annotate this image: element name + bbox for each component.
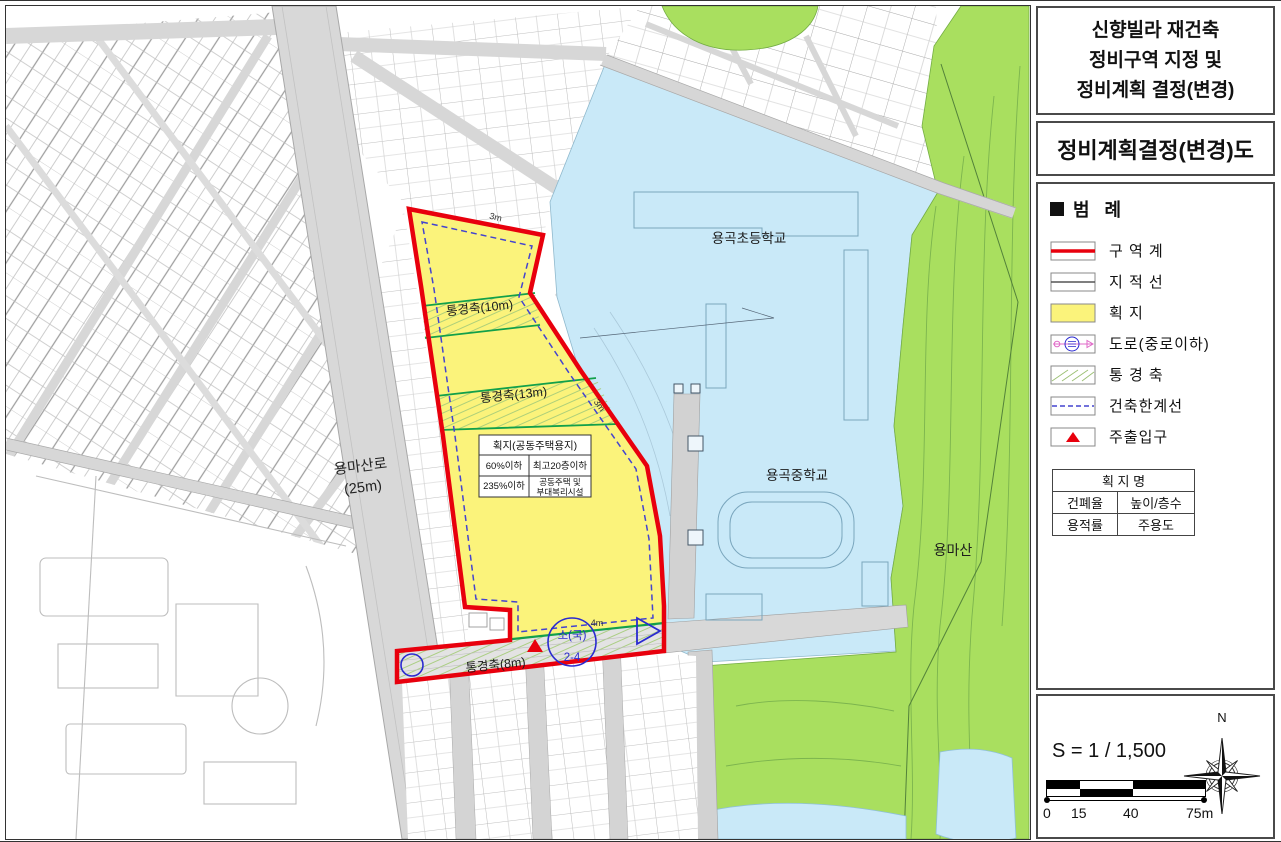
mountain-label: 용마산 bbox=[934, 542, 973, 558]
view-corridor-swatch-icon bbox=[1050, 365, 1096, 385]
compass-rose-icon: N bbox=[1179, 702, 1265, 830]
road-number-top: 소(국) bbox=[558, 629, 587, 642]
svg-text:235%이하: 235%이하 bbox=[483, 480, 525, 492]
drawing-title-box: 신향빌라 재건축 정비구역 지정 및 정비계획 결정(변경) bbox=[1036, 6, 1275, 115]
main-entrance-swatch-icon bbox=[1050, 427, 1096, 447]
legend-box: 범 례 구 역 계 지 적 선 획 지 도로(중로이하) bbox=[1036, 182, 1275, 690]
legend-item-zone-boundary: 구 역 계 bbox=[1050, 235, 1273, 266]
title-line-1: 신향빌라 재건축 bbox=[1038, 16, 1273, 46]
legend-title: 범 례 bbox=[1073, 196, 1126, 222]
parcel-table-header: 획지(공동주택용지) bbox=[493, 440, 577, 452]
svg-text:부대복리시설: 부대복리시설 bbox=[537, 487, 584, 497]
legend-item-building-limit: 건축한계선 bbox=[1050, 390, 1273, 421]
legend-square-icon bbox=[1050, 202, 1064, 216]
scale-tick-40: 40 bbox=[1123, 805, 1139, 821]
legend-item-road: 도로(중로이하) bbox=[1050, 328, 1273, 359]
parcel-swatch-icon bbox=[1050, 303, 1096, 323]
title-line-3: 정비계획 결정(변경) bbox=[1038, 76, 1273, 106]
drawing-subtitle-box: 정비계획결정(변경)도 bbox=[1036, 121, 1275, 176]
subtitle: 정비계획결정(변경)도 bbox=[1057, 133, 1254, 165]
elementary-school-label: 용곡초등학교 bbox=[712, 231, 787, 246]
zone-boundary-swatch-icon bbox=[1050, 241, 1096, 261]
zone-spec-table: 획 지 명 건폐율 높이/층수 용적률 주용도 bbox=[1052, 469, 1195, 536]
road-swatch-icon bbox=[1050, 334, 1096, 354]
legend-item-parcel: 획 지 bbox=[1050, 297, 1273, 328]
scale-ratio: S = 1 / 1,500 bbox=[1052, 740, 1166, 763]
svg-text:최고20층이하: 최고20층이하 bbox=[533, 460, 588, 472]
legend-item-main-entrance: 주출입구 bbox=[1050, 421, 1273, 452]
legend-header: 범 례 bbox=[1050, 196, 1273, 222]
cadastral-line-swatch-icon bbox=[1050, 272, 1096, 292]
compass-north-label: N bbox=[1217, 710, 1226, 725]
title-line-2: 정비구역 지정 및 bbox=[1038, 46, 1273, 76]
building-limit-swatch-icon bbox=[1050, 396, 1096, 416]
zone-table-header: 획 지 명 bbox=[1053, 470, 1195, 492]
scale-tick-15: 15 bbox=[1071, 805, 1087, 821]
road-top-right bbox=[338, 44, 606, 54]
legend-item-view-corridor: 통 경 축 bbox=[1050, 359, 1273, 390]
pond-right bbox=[936, 749, 1016, 839]
map-svg: 획지(공동주택용지) 60%이하 최고20층이하 235%이하 공동주택 및 부… bbox=[6, 6, 1030, 839]
scale-tick-0: 0 bbox=[1043, 805, 1051, 821]
svg-text:공동주택 및: 공동주택 및 bbox=[539, 477, 581, 487]
road-number-bottom: 2-4 bbox=[564, 652, 581, 664]
parcel-spec-table: 획지(공동주택용지) 60%이하 최고20층이하 235%이하 공동주택 및 부… bbox=[479, 435, 591, 497]
scale-box: S = 1 / 1,500 0 15 40 75m N bbox=[1036, 694, 1275, 839]
middle-school-label: 용곡중학교 bbox=[766, 468, 828, 483]
svg-text:60%이하: 60%이하 bbox=[486, 460, 523, 472]
road-top-horizontal bbox=[6, 26, 306, 36]
map-panel: 획지(공동주택용지) 60%이하 최고20층이하 235%이하 공동주택 및 부… bbox=[5, 5, 1031, 840]
legend-item-cadastral-line: 지 적 선 bbox=[1050, 266, 1273, 297]
setback-bottom-label: 4m bbox=[591, 618, 604, 628]
